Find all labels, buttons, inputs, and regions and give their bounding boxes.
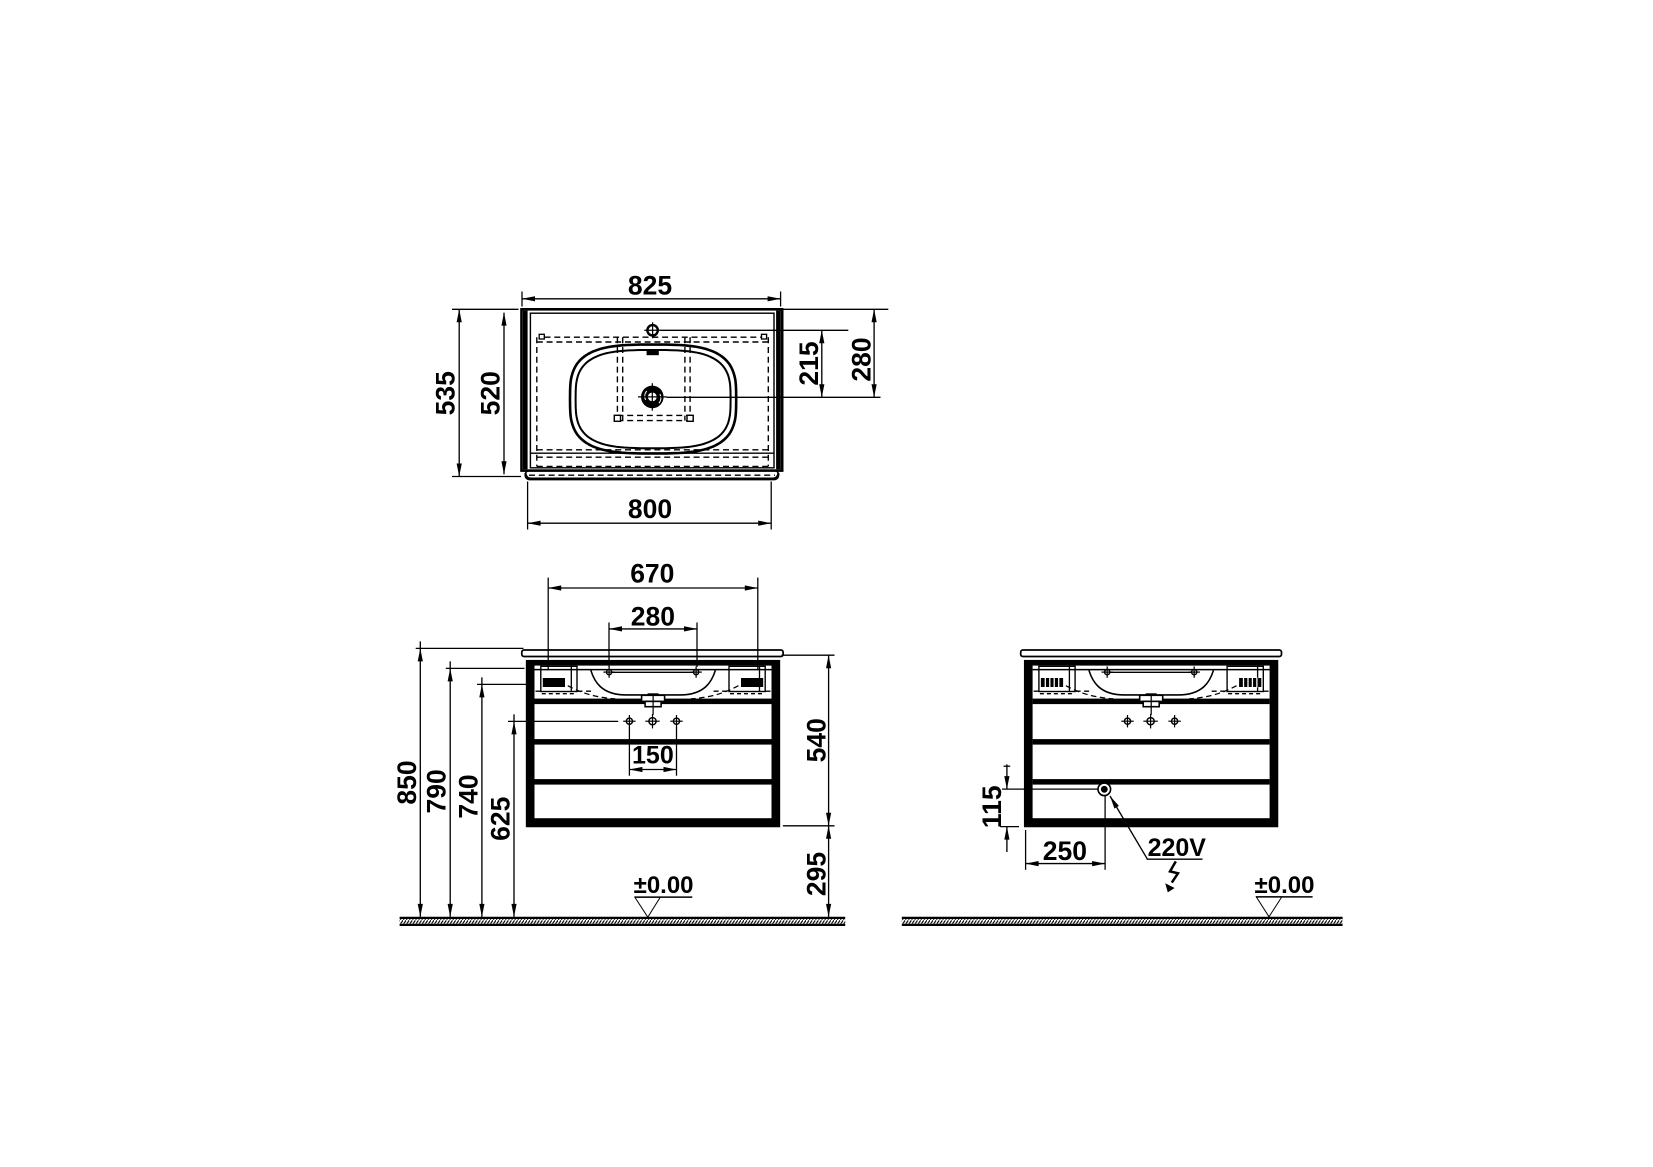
svg-text:825: 825: [628, 271, 672, 301]
svg-text:215: 215: [794, 341, 824, 385]
svg-text:540: 540: [801, 718, 831, 762]
svg-text:670: 670: [630, 558, 674, 588]
svg-text:800: 800: [628, 494, 672, 524]
svg-text:625: 625: [486, 797, 516, 841]
svg-text:250: 250: [1043, 836, 1087, 866]
svg-text:535: 535: [431, 371, 461, 415]
svg-text:220V: 220V: [1148, 834, 1207, 862]
svg-text:295: 295: [801, 852, 831, 896]
svg-text:740: 740: [453, 774, 483, 818]
svg-text:150: 150: [632, 742, 674, 770]
svg-text:280: 280: [846, 337, 876, 381]
svg-text:±0.00: ±0.00: [634, 872, 694, 899]
svg-text:850: 850: [392, 760, 422, 804]
svg-text:280: 280: [631, 602, 675, 632]
svg-text:520: 520: [475, 371, 505, 415]
svg-text:±0.00: ±0.00: [1255, 872, 1315, 899]
svg-text:790: 790: [422, 769, 452, 813]
svg-text:115: 115: [977, 785, 1007, 828]
